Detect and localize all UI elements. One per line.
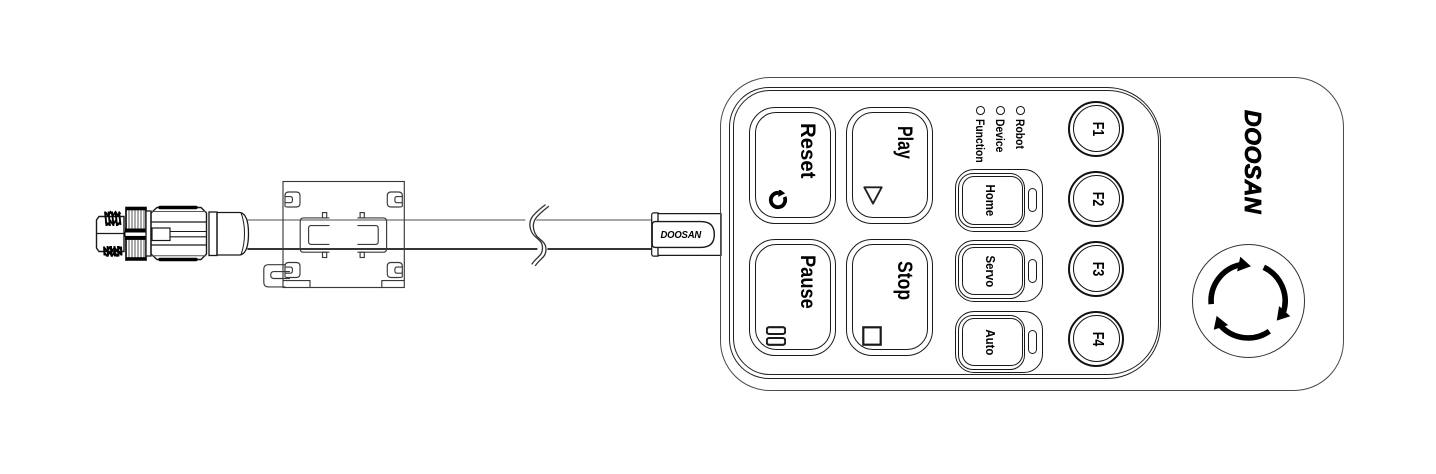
svg-text:DOOSAN: DOOSAN: [661, 230, 703, 241]
